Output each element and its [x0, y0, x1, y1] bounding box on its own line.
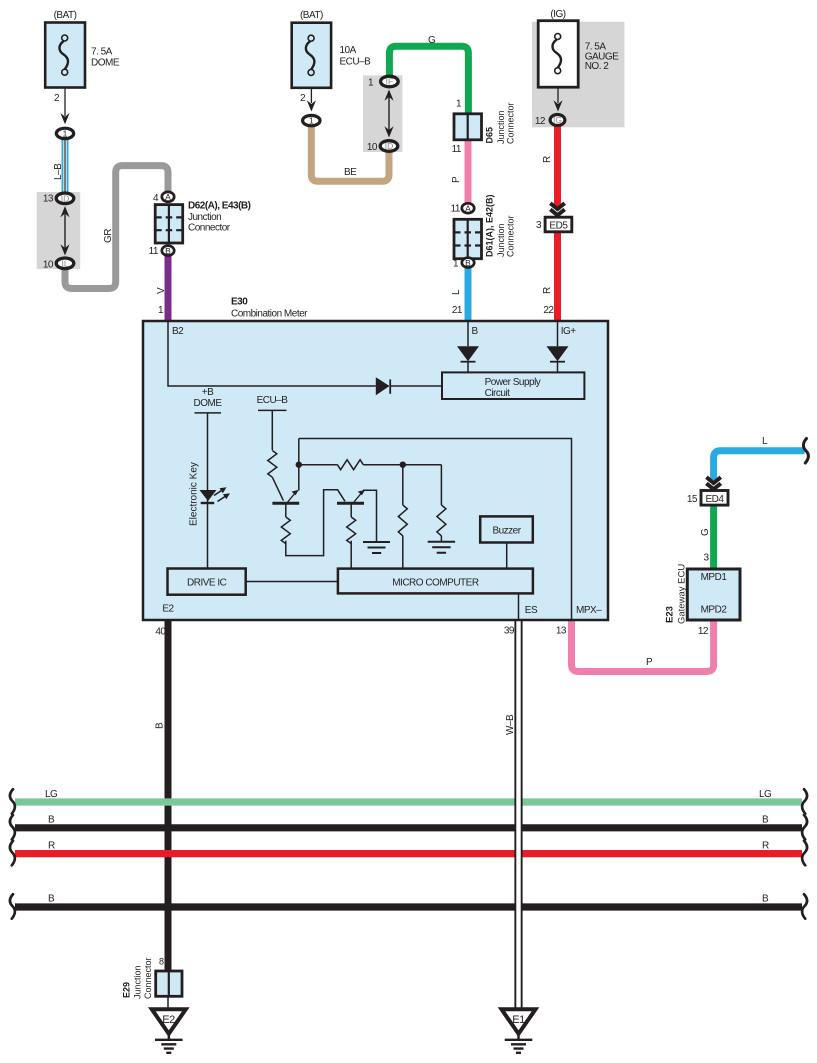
svg-text:D62(A), E43(B): D62(A), E43(B)	[188, 201, 251, 212]
svg-text:Connector: Connector	[143, 957, 153, 999]
svg-text:B: B	[48, 894, 55, 905]
svg-text:+B: +B	[202, 387, 214, 398]
svg-text:IF: IF	[386, 77, 394, 87]
svg-text:11: 11	[451, 204, 461, 215]
svg-text:D65: D65	[485, 127, 495, 144]
svg-text:ECU–B: ECU–B	[257, 395, 289, 406]
svg-text:LG: LG	[759, 789, 772, 800]
svg-text:ED5: ED5	[549, 221, 568, 232]
svg-text:13: 13	[556, 626, 567, 637]
svg-text:22: 22	[543, 305, 554, 316]
svg-text:11: 11	[452, 144, 462, 155]
svg-text:IL: IL	[61, 259, 68, 269]
svg-text:Buzzer: Buzzer	[492, 526, 521, 537]
svg-text:E29: E29	[122, 982, 132, 998]
svg-text:DOME: DOME	[194, 398, 223, 409]
svg-text:12: 12	[698, 626, 709, 637]
svg-text:R: R	[542, 287, 553, 294]
svg-text:ES: ES	[525, 605, 538, 616]
svg-text:MPD1: MPD1	[701, 572, 728, 583]
svg-text:1: 1	[309, 116, 314, 126]
svg-text:39: 39	[504, 626, 515, 637]
svg-text:ECU–B: ECU–B	[340, 57, 372, 68]
svg-text:13: 13	[43, 194, 54, 205]
svg-text:B: B	[762, 815, 769, 826]
svg-text:E1: E1	[512, 1014, 525, 1026]
svg-text:R: R	[48, 840, 55, 851]
svg-text:W–B: W–B	[505, 714, 516, 735]
svg-text:E30: E30	[231, 297, 248, 308]
svg-text:R: R	[542, 156, 553, 163]
svg-text:GR: GR	[103, 229, 114, 243]
svg-text:MICRO COMPUTER: MICRO COMPUTER	[392, 578, 479, 589]
svg-text:IG+: IG+	[561, 326, 577, 337]
svg-text:NO. 2: NO. 2	[585, 61, 610, 72]
svg-text:ID: ID	[61, 194, 70, 204]
svg-text:Electronic Key: Electronic Key	[189, 462, 200, 526]
svg-text:10: 10	[43, 260, 54, 271]
svg-text:(IG): (IG)	[550, 9, 565, 20]
svg-text:Connector: Connector	[506, 102, 516, 144]
svg-text:15: 15	[687, 494, 698, 505]
svg-text:P: P	[451, 176, 462, 183]
svg-text:DRIVE IC: DRIVE IC	[187, 578, 227, 589]
svg-text:1: 1	[63, 129, 68, 139]
svg-text:BE: BE	[344, 167, 357, 178]
svg-text:ED4: ED4	[706, 494, 725, 505]
svg-text:7. 5A: 7. 5A	[91, 47, 113, 58]
svg-text:8: 8	[159, 957, 164, 967]
svg-text:R: R	[762, 840, 769, 851]
svg-text:P: P	[646, 657, 653, 668]
svg-text:E2: E2	[162, 604, 174, 615]
svg-text:MPD2: MPD2	[701, 605, 728, 616]
svg-text:(BAT): (BAT)	[54, 10, 77, 21]
svg-text:G: G	[428, 35, 436, 46]
svg-text:Junction: Junction	[133, 965, 143, 999]
svg-text:D61(A), E42(B): D61(A), E42(B)	[485, 194, 495, 257]
svg-text:A: A	[165, 192, 171, 202]
svg-text:A: A	[465, 203, 471, 213]
svg-text:DOME: DOME	[91, 57, 120, 68]
svg-text:B: B	[762, 894, 769, 905]
svg-text:B: B	[165, 246, 171, 256]
svg-text:B: B	[472, 326, 479, 337]
svg-text:ID: ID	[385, 141, 394, 151]
svg-text:L–B: L–B	[53, 163, 64, 180]
svg-text:B: B	[48, 815, 55, 826]
svg-text:Junction: Junction	[188, 212, 221, 223]
svg-text:B: B	[155, 722, 166, 729]
svg-text:Combination Meter: Combination Meter	[231, 309, 308, 320]
svg-text:E2: E2	[162, 1014, 175, 1026]
svg-text:11: 11	[149, 246, 159, 257]
svg-text:Junction: Junction	[496, 110, 506, 144]
svg-text:G: G	[700, 528, 711, 536]
svg-text:Junction: Junction	[496, 223, 506, 257]
svg-text:E23: E23	[665, 606, 676, 623]
svg-text:Connector: Connector	[506, 215, 516, 257]
svg-text:B2: B2	[172, 326, 184, 337]
svg-text:10: 10	[367, 142, 378, 153]
svg-text:Power Supply: Power Supply	[485, 377, 541, 388]
svg-text:B: B	[465, 258, 471, 268]
svg-text:V: V	[156, 287, 167, 294]
svg-text:Gateway ECU: Gateway ECU	[677, 564, 688, 624]
svg-text:40: 40	[155, 627, 166, 638]
svg-text:Connector: Connector	[188, 223, 231, 234]
svg-text:10A: 10A	[340, 45, 357, 56]
svg-text:Circuit: Circuit	[485, 388, 511, 399]
svg-text:12: 12	[535, 116, 546, 127]
svg-text:(BAT): (BAT)	[300, 10, 323, 21]
svg-text:MPX–: MPX–	[576, 605, 602, 616]
svg-text:LG: LG	[45, 789, 58, 800]
svg-text:IG: IG	[553, 115, 562, 125]
svg-text:21: 21	[452, 305, 463, 316]
